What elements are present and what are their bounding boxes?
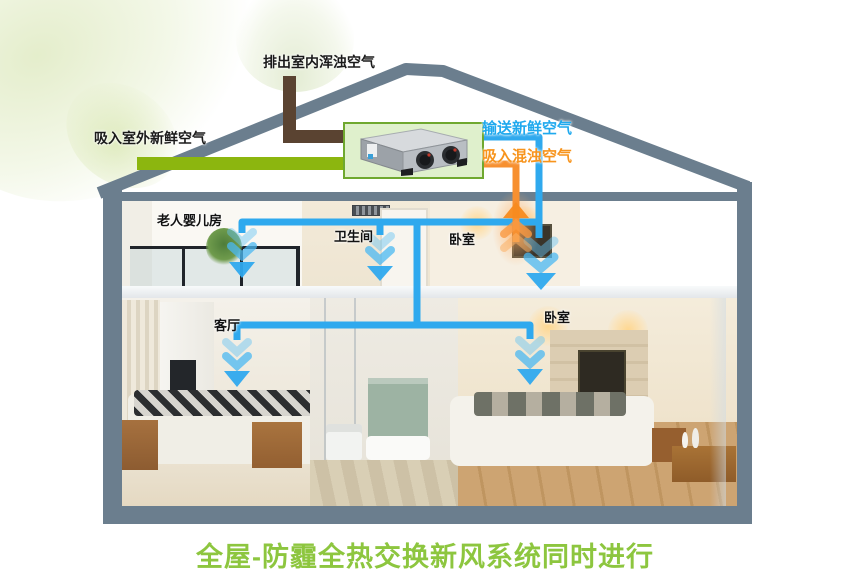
fresh-air-duct [137,157,345,170]
ventilator-unit-box [343,122,484,179]
room-label-bedroom-upper: 卧室 [449,229,475,248]
room-label-bedroom-lower: 卧室 [544,307,570,326]
supply-fresh-air-label: 输送新鲜空气 [482,117,572,138]
airflow-arrow-living-room [224,342,250,387]
attic-beam [122,192,737,201]
page-title: 全屋-防霾全热交换新风系统同时进行 [0,535,850,574]
room-label-living: 客厅 [214,315,240,334]
exhaust-air-label: 排出室内浑浊空气 [263,52,375,72]
fresh-intake-label: 吸入室外新鲜空气 [94,128,206,148]
airflow-arrow-bedroom-lower [517,340,543,385]
ventilation-diagram: 排出室内浑浊空气 吸入室外新鲜空气 输送新鲜空气 吸入混浊空气 老人婴儿房 卫生… [0,0,850,584]
return-stale-air-label: 吸入混浊空气 [482,145,572,166]
structure-and-ducts [0,0,850,584]
room-label-elderly-baby: 老人婴儿房 [157,210,222,229]
ventilator-unit-icon [345,124,482,177]
room-label-bathroom: 卫生间 [334,226,373,245]
airflow-arrow-elderly-room [229,232,255,278]
right-wall [737,182,752,523]
left-wall [103,186,122,523]
ground-floor-bar [103,506,752,524]
